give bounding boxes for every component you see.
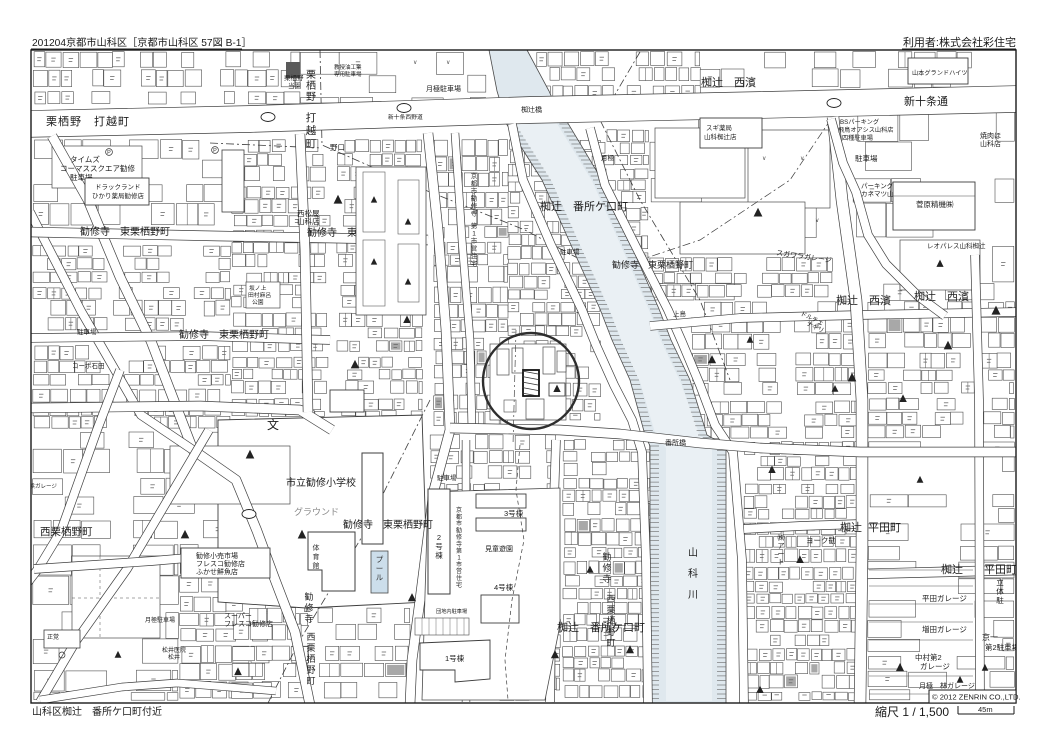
- svg-text:町: 町: [306, 676, 315, 686]
- svg-text:コーマススクエア勧修: コーマススクエア勧修: [60, 163, 135, 173]
- svg-text:椥辻: 椥辻: [941, 562, 963, 576]
- svg-text:団地内駐車場: 団地内駐車場: [436, 607, 467, 615]
- svg-text:スギ薬局: スギ薬局: [706, 123, 732, 132]
- svg-text:栗: 栗: [306, 69, 316, 81]
- svg-text:都: 都: [456, 513, 462, 521]
- svg-text:飛鳥オアシス山科店: 飛鳥オアシス山科店: [838, 126, 893, 134]
- svg-text:西: 西: [306, 632, 315, 642]
- svg-text:市: 市: [471, 186, 478, 195]
- svg-text:勧修寺 東栗栖野町: 勧修寺 東栗栖野町: [80, 225, 170, 238]
- svg-text:勧: 勧: [456, 526, 462, 534]
- svg-text:勧修小売市場: 勧修小売市場: [196, 551, 238, 560]
- svg-text:松井医院: 松井医院: [162, 646, 186, 654]
- svg-text:立: 立: [996, 577, 1004, 587]
- svg-text:ト: ト: [778, 559, 785, 566]
- svg-text:新十条通: 新十条通: [904, 94, 948, 108]
- svg-text:公園: 公園: [252, 299, 264, 306]
- svg-text:椥辻 西濱: 椥辻 西濱: [836, 293, 891, 307]
- svg-text:中村第2: 中村第2: [915, 652, 942, 662]
- svg-text:スーパー: スーパー: [224, 612, 252, 620]
- svg-text:駐: 駐: [996, 595, 1004, 605]
- svg-text:番所橋: 番所橋: [665, 438, 686, 447]
- svg-text:寺: 寺: [456, 540, 462, 548]
- svg-text:平田町: 平田町: [868, 522, 901, 534]
- svg-text:㈱: ㈱: [778, 533, 785, 542]
- svg-text:野口: 野口: [330, 143, 345, 152]
- svg-text:宅: 宅: [456, 581, 462, 589]
- svg-text:営: 営: [456, 567, 462, 575]
- svg-text:山科椥辻店: 山科椥辻店: [704, 132, 737, 141]
- svg-text:西栗栖野町: 西栗栖野町: [40, 525, 93, 538]
- svg-text:菅原精機㈱: 菅原精機㈱: [916, 199, 954, 209]
- svg-text:営: 営: [471, 244, 478, 253]
- svg-text:新十条西野道: 新十条西野道: [388, 113, 423, 121]
- svg-text:駐車場: 駐車場: [855, 153, 878, 163]
- svg-text:松井: 松井: [168, 653, 180, 661]
- svg-text:1号棟: 1号棟: [445, 653, 465, 663]
- svg-text:ル: ル: [376, 573, 384, 582]
- svg-text:勧修寺 東栗栖野町: 勧修寺 東栗栖野町: [179, 328, 269, 341]
- svg-text:寺: 寺: [602, 574, 611, 584]
- svg-text:プ: プ: [376, 555, 384, 564]
- svg-text:© 2012 ZENRIN CO.,LTD.: © 2012 ZENRIN CO.,LTD.: [932, 693, 1021, 702]
- svg-text:田村麻呂: 田村麻呂: [248, 291, 271, 299]
- svg-text:山: 山: [688, 547, 698, 559]
- svg-text:野: 野: [606, 627, 615, 637]
- svg-text:野: 野: [306, 665, 315, 675]
- svg-text:栖: 栖: [606, 615, 615, 626]
- svg-text:ア: ア: [778, 542, 785, 550]
- svg-text:月極駐車場: 月極駐車場: [145, 616, 175, 624]
- svg-text:山科店: 山科店: [980, 139, 1001, 148]
- svg-text:勧修寺 東栗栖野町: 勧修寺 東栗栖野町: [343, 518, 433, 531]
- svg-text:ヨーク勧: ヨーク勧: [806, 535, 836, 545]
- svg-text:月極 林ガレージ: 月極 林ガレージ: [919, 681, 975, 690]
- svg-text:市: 市: [456, 560, 462, 568]
- svg-text:越: 越: [306, 124, 317, 137]
- svg-text:栗: 栗: [306, 643, 315, 653]
- svg-text:修: 修: [304, 602, 313, 613]
- svg-text:都: 都: [471, 180, 478, 188]
- svg-text:正覚: 正覚: [47, 633, 59, 641]
- svg-text:当園: 当園: [288, 81, 301, 90]
- svg-text:45m: 45m: [978, 705, 993, 714]
- svg-text:京: 京: [456, 506, 462, 514]
- svg-text:P: P: [213, 148, 217, 154]
- svg-text:BSパーキング: BSパーキング: [840, 118, 879, 126]
- svg-text:縮尺 1 / 1,500: 縮尺 1 / 1,500: [875, 704, 949, 719]
- svg-text:宅: 宅: [471, 259, 478, 268]
- svg-text:ガレージ: ガレージ: [920, 661, 950, 671]
- svg-text:1: 1: [472, 231, 476, 238]
- svg-text:棟: 棟: [435, 550, 443, 560]
- svg-text:ー: ー: [376, 564, 384, 573]
- svg-text:椥辻 番所ケ口町: 椥辻 番所ケ口町: [557, 620, 645, 634]
- svg-text:寺: 寺: [471, 210, 478, 218]
- svg-text:西: 西: [606, 594, 615, 604]
- svg-text:第2駐車場: 第2駐車場: [985, 642, 1020, 652]
- svg-text:修: 修: [456, 533, 462, 541]
- svg-text:グラウンド: グラウンド: [294, 506, 339, 517]
- svg-text:修: 修: [471, 201, 478, 210]
- svg-text:フレスコ勧修店: フレスコ勧修店: [196, 559, 245, 568]
- svg-text:増田ガレージ: 増田ガレージ: [922, 624, 967, 634]
- svg-text:育: 育: [313, 552, 320, 561]
- svg-text:勧修寺 東栗栖野町: 勧修寺 東栗栖野町: [612, 259, 693, 270]
- svg-text:見童遊園: 見童遊園: [485, 544, 513, 553]
- svg-text:∨: ∨: [762, 156, 766, 162]
- svg-text:専用駐車場: 専用駐車場: [334, 70, 362, 78]
- svg-text:駐車場: 駐車場: [77, 327, 97, 336]
- svg-text:文: 文: [267, 417, 279, 432]
- svg-text:山科区椥辻 番所ケ口町付近: 山科区椥辻 番所ケ口町付近: [32, 705, 162, 718]
- svg-text:四種駐車場: 四種駐車場: [842, 134, 873, 142]
- svg-text:201204京都市山科区［京都市山科区 57図 B-1］: 201204京都市山科区［京都市山科区 57図 B-1］: [32, 36, 252, 49]
- svg-text:利用者:株式会社彩住宅: 利用者:株式会社彩住宅: [903, 35, 1016, 49]
- svg-text:レオパレス山科椥辻: レオパレス山科椥辻: [927, 241, 986, 250]
- svg-text:ドラックランド: ドラックランド: [95, 183, 141, 191]
- svg-text:∨: ∨: [413, 60, 417, 66]
- svg-text:3号棟: 3号棟: [504, 508, 524, 518]
- svg-text:椥辻 西濱: 椥辻 西濱: [914, 289, 969, 303]
- svg-text:栗栖野: 栗栖野: [284, 73, 304, 82]
- svg-text:P: P: [107, 150, 111, 156]
- svg-text:第: 第: [456, 547, 462, 555]
- svg-text:コーポ石田: コーポ石田: [72, 362, 105, 370]
- svg-text:椥辻 番所ケ口町: 椥辻 番所ケ口町: [540, 199, 628, 213]
- svg-text:月極駐車場: 月極駐車場: [426, 84, 461, 93]
- svg-text:椥辻橋: 椥辻橋: [521, 105, 542, 114]
- svg-text:住: 住: [456, 574, 462, 582]
- svg-text:体: 体: [996, 586, 1004, 596]
- svg-text:勧: 勧: [602, 551, 611, 562]
- svg-text:栖: 栖: [306, 653, 315, 664]
- svg-text:フレスコ勧修店: フレスコ勧修店: [224, 619, 273, 628]
- svg-text:栗: 栗: [606, 605, 615, 615]
- svg-text:科: 科: [688, 567, 698, 580]
- svg-text:町: 町: [606, 638, 615, 648]
- svg-text:椥辻: 椥辻: [840, 520, 862, 534]
- svg-text:教授油工業: 教授油工業: [334, 63, 362, 71]
- svg-text:上島: 上島: [673, 309, 687, 318]
- svg-text:市: 市: [456, 520, 462, 528]
- svg-text:2: 2: [437, 533, 441, 542]
- svg-text:ひかり薬局勧修店: ひかり薬局勧修店: [92, 191, 145, 200]
- svg-text:第: 第: [471, 221, 478, 230]
- svg-text:駐車場: 駐車場: [437, 473, 457, 482]
- svg-text:4号棟: 4号棟: [494, 582, 514, 592]
- svg-text:平田ガレージ: 平田ガレージ: [922, 593, 967, 603]
- svg-text:勧: 勧: [471, 194, 478, 203]
- svg-text:館: 館: [313, 561, 320, 570]
- svg-text:焼肉ほ: 焼肉ほ: [980, 131, 1001, 140]
- svg-text:京一: 京一: [982, 632, 998, 642]
- svg-text:野: 野: [306, 91, 316, 103]
- svg-text:タイムズ: タイムズ: [70, 154, 100, 164]
- svg-text:寺: 寺: [304, 614, 313, 624]
- svg-text:山科店: 山科店: [297, 216, 320, 226]
- svg-text:平田町: 平田町: [984, 564, 1017, 576]
- svg-text:ふかせ鮮魚店: ふかせ鮮魚店: [196, 567, 238, 576]
- svg-text:パーキング: パーキング: [861, 181, 894, 190]
- svg-text:体: 体: [313, 543, 320, 552]
- svg-text:住: 住: [471, 251, 478, 260]
- svg-text:川: 川: [688, 590, 698, 601]
- svg-text:市: 市: [471, 236, 478, 245]
- svg-text:駐車場: 駐車場: [560, 247, 580, 256]
- svg-text:∨: ∨: [446, 60, 450, 66]
- svg-text:号: 号: [435, 542, 443, 551]
- svg-text:市立勧修小学校: 市立勧修小学校: [286, 476, 356, 489]
- svg-text:打: 打: [306, 111, 317, 124]
- svg-text:ー: ー: [778, 551, 785, 558]
- svg-text:勧: 勧: [304, 591, 313, 602]
- svg-text:山本グランドハイツ: 山本グランドハイツ: [912, 69, 968, 77]
- svg-text:∨: ∨: [815, 218, 819, 224]
- svg-text:修: 修: [602, 562, 611, 573]
- svg-text:月極: 月極: [601, 153, 615, 162]
- svg-text:京: 京: [471, 171, 478, 180]
- svg-text:栖: 栖: [306, 79, 316, 92]
- svg-text:坂ノ上: 坂ノ上: [249, 284, 267, 292]
- svg-text:町: 町: [306, 138, 317, 150]
- svg-text:栗栖野 打越町: 栗栖野 打越町: [46, 114, 130, 128]
- svg-text:椥辻 西濱: 椥辻 西濱: [701, 75, 756, 89]
